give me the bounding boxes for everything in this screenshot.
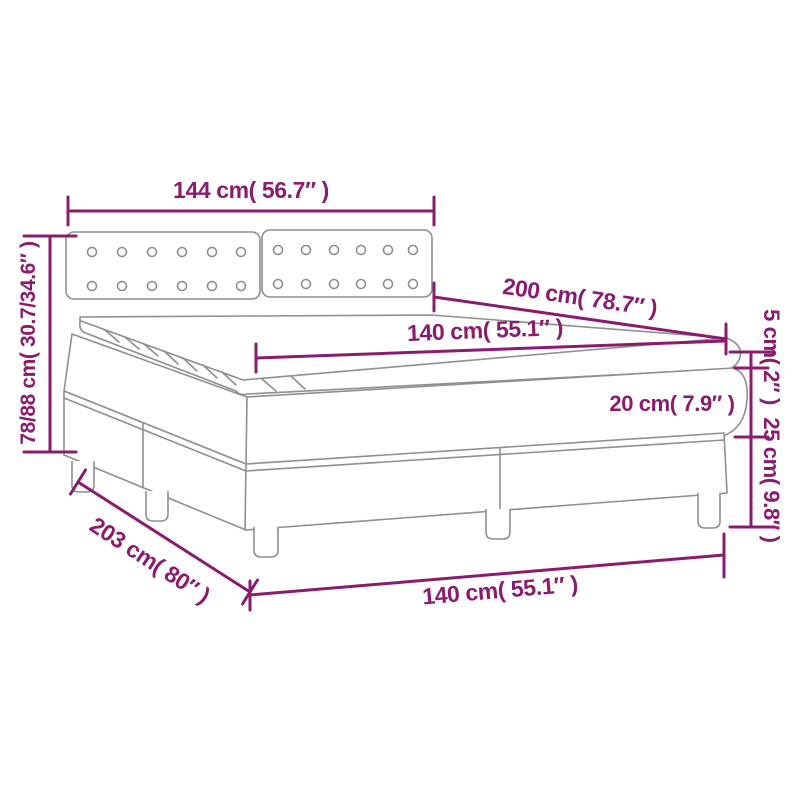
headboard-right-panel [262, 230, 432, 297]
base-height-label: 25 cm( 9.8″ ) [759, 417, 784, 542]
dimension-diagram: 144 cm( 56.7″ ) 200 cm( 78.7″ ) 140 cm( … [0, 0, 800, 800]
dim-headboard-width: 144 cm( 56.7″ ) [68, 177, 434, 225]
headboard-width-label: 144 cm( 56.7″ ) [173, 177, 329, 203]
mattress-height-label: 20 cm( 7.9″ ) [609, 391, 734, 416]
base-width-label: 140 cm( 55.1″ ) [421, 571, 579, 610]
bed-length-label: 200 cm( 78.7″ ) [501, 273, 659, 321]
total-length-label: 203 cm( 80″ ) [85, 512, 214, 609]
dim-base-width: 140 cm( 55.1″ ) [250, 534, 724, 610]
headboard [66, 230, 432, 299]
total-height-label: 78/88 cm( 30.7/34.6″ ) [17, 241, 40, 444]
bed-illustration: 144 cm( 56.7″ ) 200 cm( 78.7″ ) 140 cm( … [0, 0, 800, 800]
topper-height-label: 5 cm( 2″ ) [759, 309, 784, 405]
